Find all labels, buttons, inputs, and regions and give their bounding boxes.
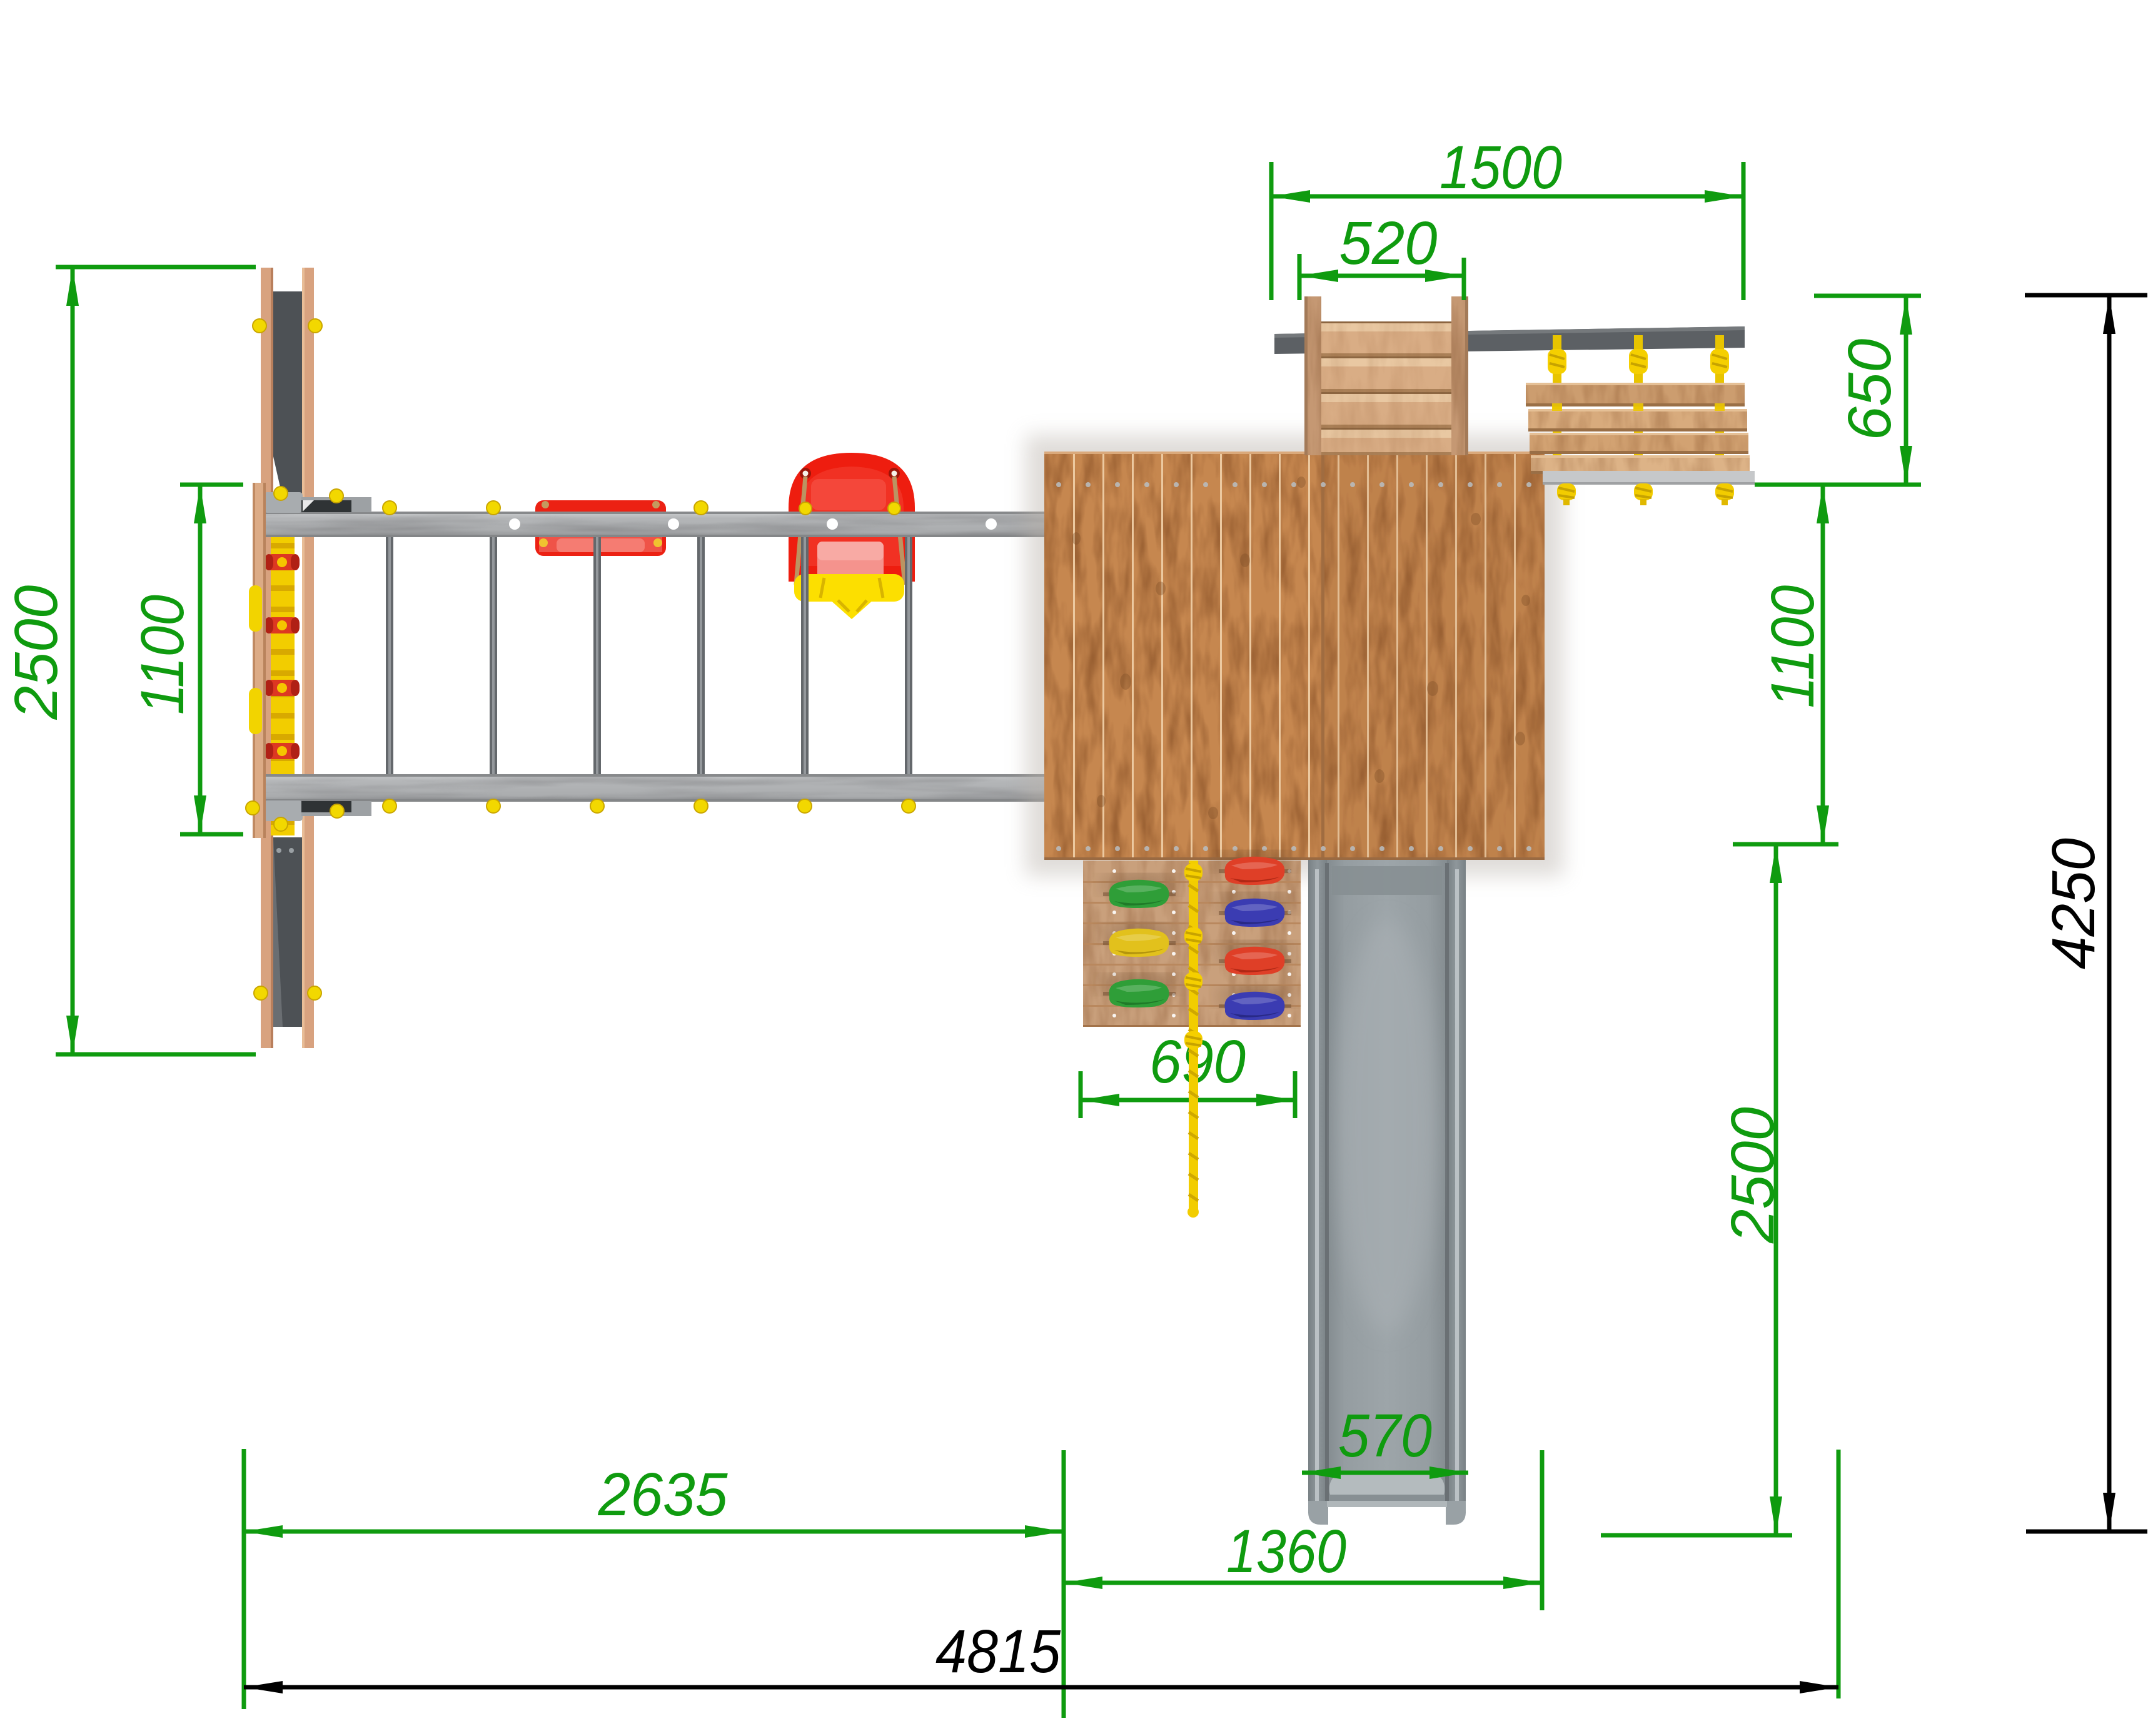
svg-text:2635: 2635 [598,1460,729,1528]
svg-text:1360: 1360 [1226,1517,1346,1585]
svg-text:2500: 2500 [1718,1107,1787,1244]
svg-text:1100: 1100 [1758,585,1827,708]
svg-text:4250: 4250 [2039,838,2107,969]
svg-text:650: 650 [1835,338,1903,440]
svg-text:2500: 2500 [2,585,70,720]
svg-text:570: 570 [1338,1401,1432,1470]
svg-text:520: 520 [1339,209,1438,277]
svg-text:4815: 4815 [935,1617,1061,1685]
svg-text:1500: 1500 [1440,133,1562,201]
svg-text:1100: 1100 [128,595,196,715]
